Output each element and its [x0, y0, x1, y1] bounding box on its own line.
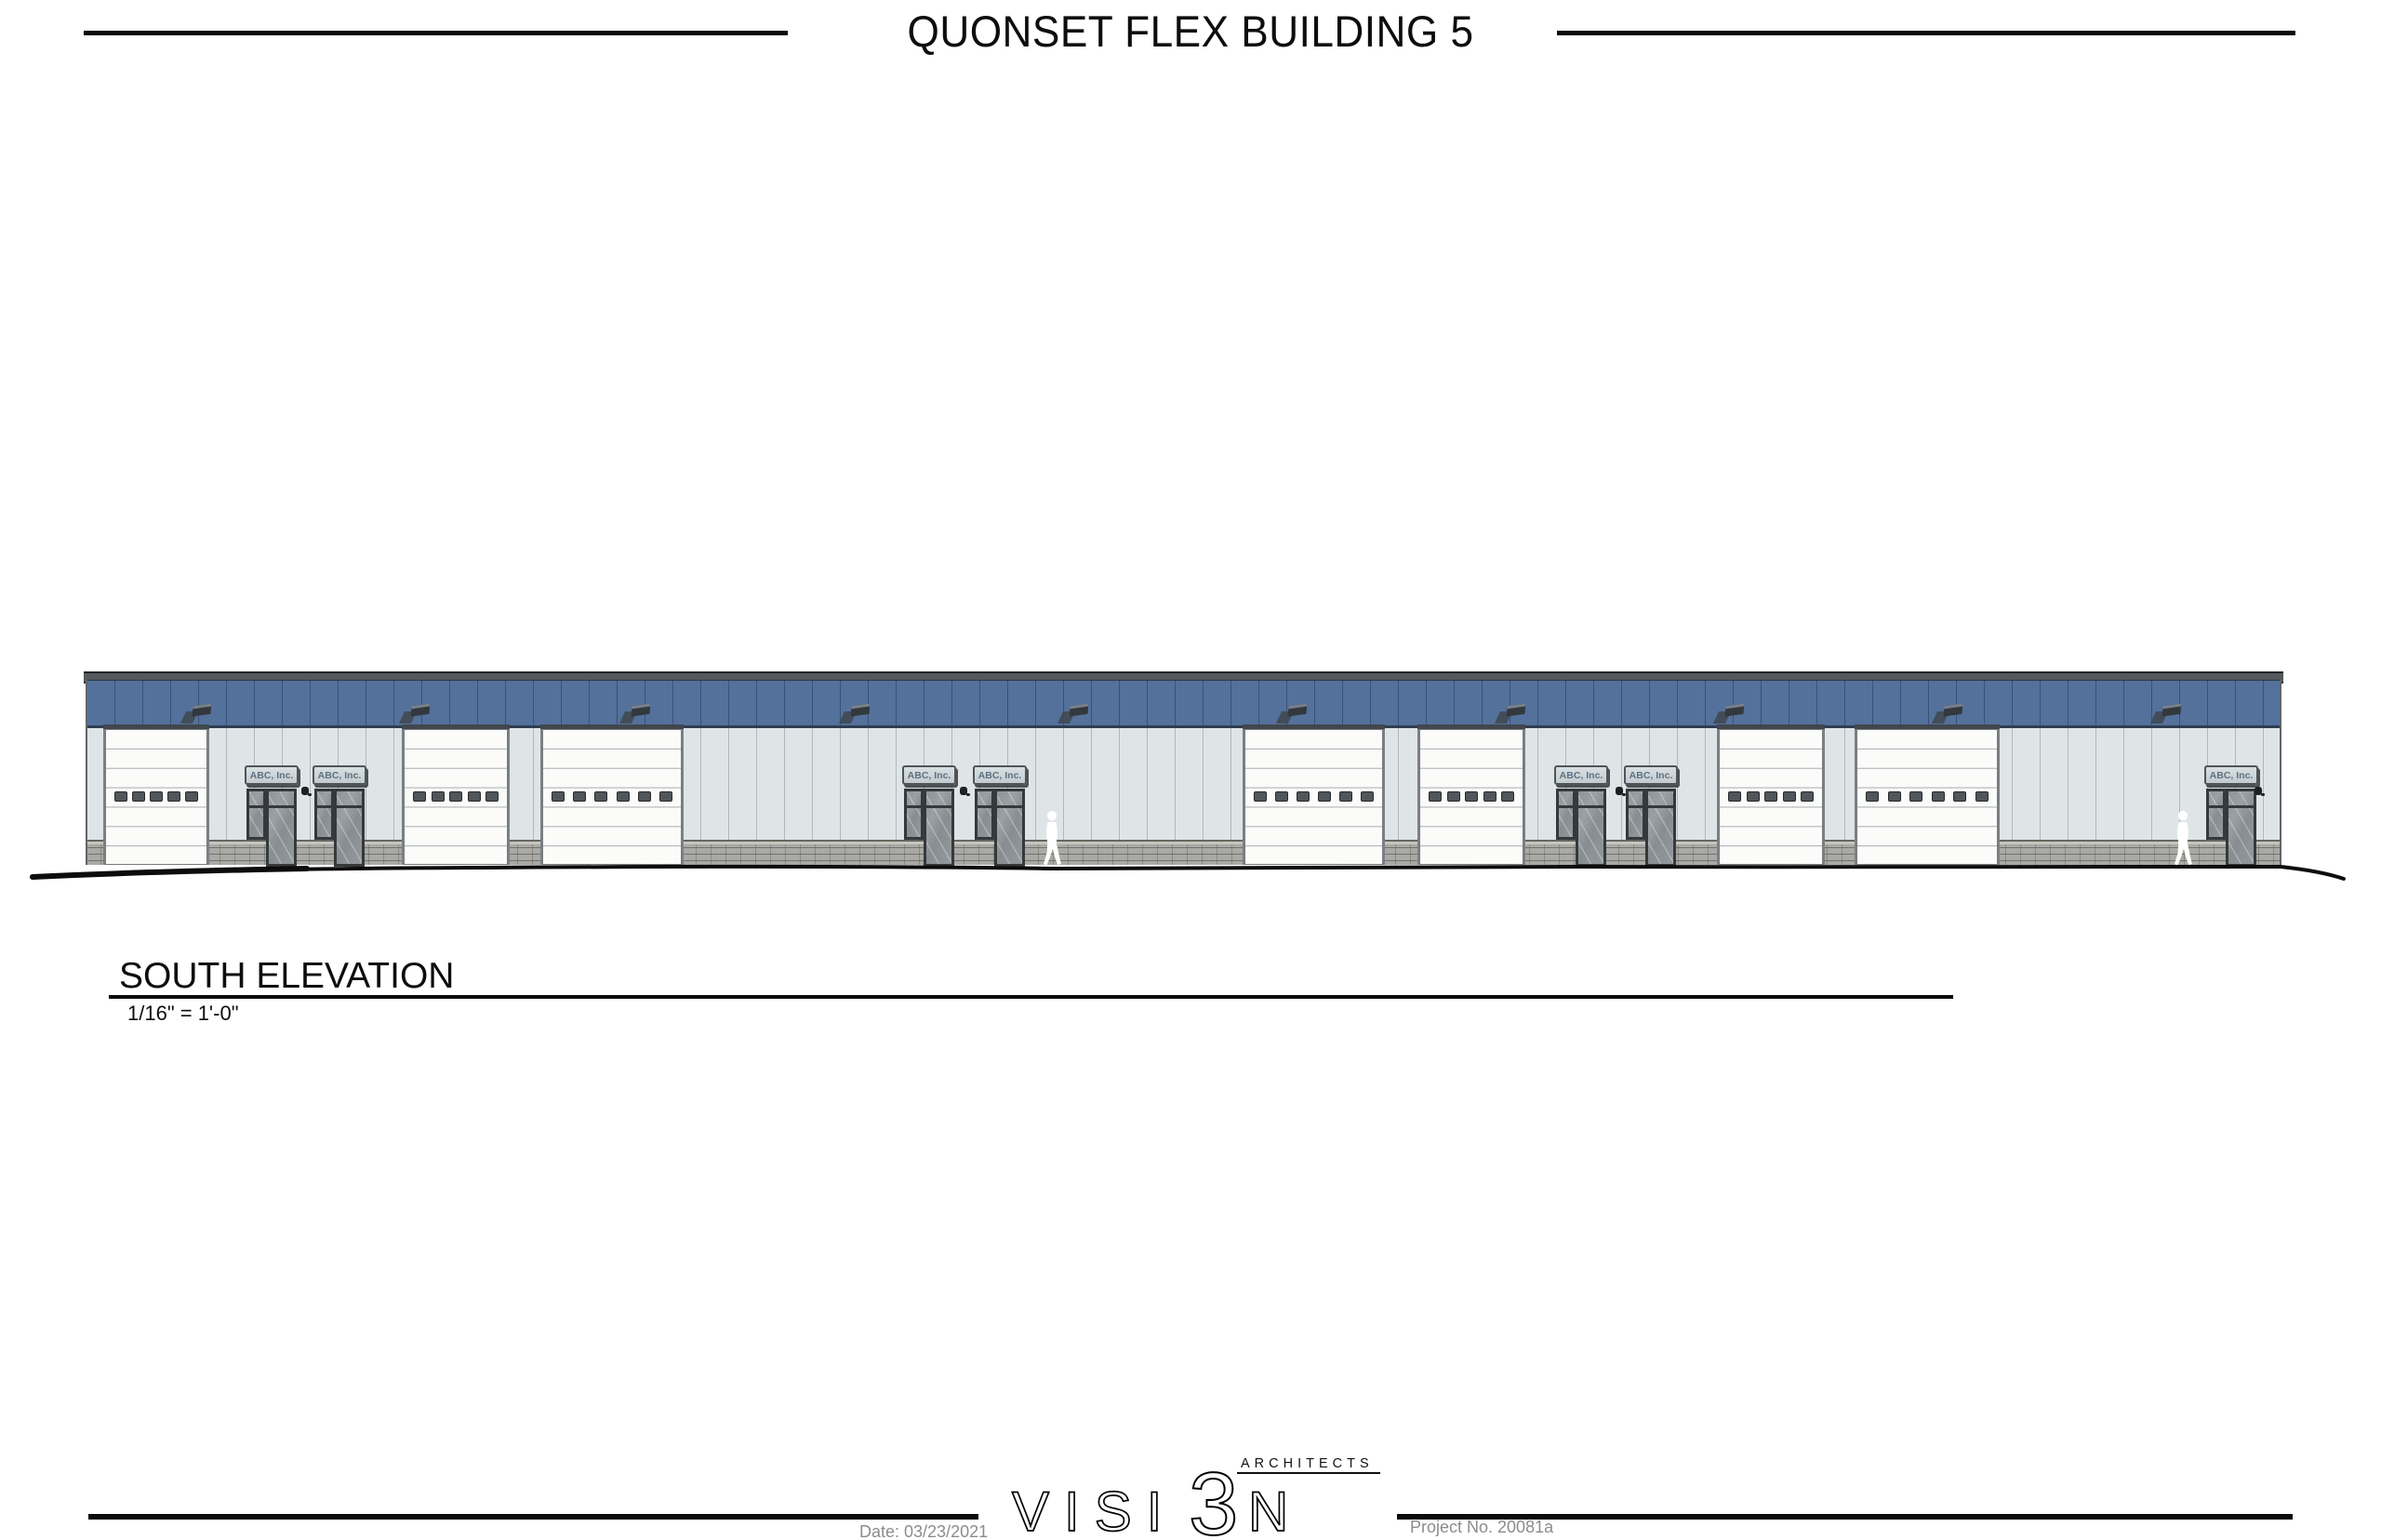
metal-band-seam	[1454, 681, 1455, 725]
garage-door-jamb	[1523, 729, 1525, 865]
metal-band-seam	[1258, 681, 1259, 725]
wall-panel-seam	[1230, 728, 1231, 840]
metal-band-seam	[282, 681, 283, 725]
elevation-drawing: ABC, Inc.ABC, Inc.ABC, Inc.ABC, Inc.ABC,…	[0, 0, 2381, 1540]
wall-panel-seam	[2123, 728, 2124, 840]
metal-band-seam	[1789, 681, 1789, 725]
metal-band-seam	[254, 681, 255, 725]
tenant-sign: ABC, Inc.	[245, 765, 299, 785]
metal-band-seam	[449, 681, 450, 725]
garage-door-window	[1909, 791, 1922, 802]
garage-door-window	[432, 791, 445, 802]
garage-door-jamb	[682, 729, 684, 865]
metal-band-seam	[1844, 681, 1845, 725]
garage-door-jamb	[1823, 729, 1825, 865]
wall-panel-seam	[700, 728, 701, 840]
garage-door-window	[1339, 791, 1352, 802]
garage-door-window-row	[1429, 791, 1514, 802]
wall-light	[1499, 705, 1525, 725]
garage-door-window	[1866, 791, 1879, 802]
garage-door	[1244, 729, 1383, 865]
metal-band-seam	[1621, 681, 1622, 725]
door-transom-mullion	[926, 805, 951, 808]
wall-panel-seam	[868, 728, 869, 840]
garage-door-window	[1888, 791, 1901, 802]
sidelight-mullion	[978, 805, 991, 808]
wall-light	[844, 705, 870, 725]
metal-band-seam	[2235, 681, 2236, 725]
door-transom-mullion	[269, 805, 294, 808]
logo-architects-text: ARCHITECTS	[1241, 1456, 1374, 1471]
wall-panel-seam	[1203, 728, 1204, 840]
metal-band-seam	[477, 681, 478, 725]
building-edge-right	[2280, 680, 2281, 865]
entry-sidelight	[2206, 789, 2226, 840]
wall-panel-seam	[1844, 728, 1845, 840]
wall-panel-seam	[756, 728, 757, 840]
garage-door-window	[413, 791, 426, 802]
garage-door-window	[638, 791, 651, 802]
garage-door-window	[594, 791, 607, 802]
garage-door-window	[150, 791, 163, 802]
wall-light-icon	[411, 703, 431, 716]
metal-band-seam	[338, 681, 339, 725]
wall-panel-seam	[1035, 728, 1036, 840]
logo-numeral-3: 3	[1189, 1454, 1238, 1540]
garage-door-window-row	[1254, 791, 1374, 802]
elevation-label-underline	[109, 995, 1953, 999]
building-edge-left	[86, 680, 87, 865]
garage-door	[542, 729, 682, 865]
door-transom-mullion	[337, 805, 362, 808]
garage-door	[105, 729, 207, 865]
door-transom-mullion	[2228, 805, 2254, 808]
metal-band-seam	[924, 681, 924, 725]
garage-door-window	[1429, 791, 1442, 802]
garage-door-window	[1932, 791, 1945, 802]
wall-light	[624, 705, 650, 725]
drawing-sheet: QUONSET FLEX BUILDING 5 ABC, Inc.ABC, In…	[0, 0, 2381, 1540]
metal-band-seam	[589, 681, 590, 725]
wall-light-icon	[1070, 703, 1089, 716]
metal-band-seam	[812, 681, 813, 725]
wall-light	[1281, 705, 1307, 725]
wall-panel-seam	[784, 728, 785, 840]
metal-band-seam	[1705, 681, 1706, 725]
garage-door-jamb	[1383, 729, 1385, 865]
garage-door-window	[1728, 791, 1741, 802]
entry-sconce-spark	[2261, 793, 2265, 796]
wall-panel-seam	[1398, 728, 1399, 840]
garage-door-window-row	[552, 791, 672, 802]
garage-door	[1856, 729, 1998, 865]
wall-light-icon	[1507, 703, 1526, 716]
garage-door-window	[1783, 791, 1796, 802]
wall-light-icon	[2162, 703, 2182, 716]
garage-door-window	[573, 791, 586, 802]
metal-band-seam	[1537, 681, 1538, 725]
wall-panel-seam	[2263, 728, 2264, 840]
wall-panel-seam	[1537, 728, 1538, 840]
garage-door-window	[1465, 791, 1478, 802]
metal-band-seam	[672, 681, 673, 725]
wall-panel-seam	[2012, 728, 2013, 840]
wall-light	[404, 705, 430, 725]
garage-door-window	[1275, 791, 1288, 802]
entry-sidelight	[1626, 789, 1645, 840]
garage-door-window	[1747, 791, 1760, 802]
metal-band-seam	[1091, 681, 1092, 725]
wall-light-icon	[632, 703, 651, 716]
garage-door-window	[1361, 791, 1374, 802]
metal-band-seam	[1203, 681, 1204, 725]
wall-panel-seam	[812, 728, 813, 840]
wall-light	[185, 705, 211, 725]
wall-panel-seam	[2151, 728, 2152, 840]
metal-band-seam	[1314, 681, 1315, 725]
metal-band-seam	[310, 681, 311, 725]
wall-light	[2155, 705, 2181, 725]
elevation-label: SOUTH ELEVATION	[119, 956, 454, 997]
metal-band-seam	[1482, 681, 1483, 725]
tenant-sign: ABC, Inc.	[902, 765, 956, 785]
wall-light-icon	[1288, 703, 1308, 716]
wall-light	[1718, 705, 1744, 725]
glass-reflection	[1559, 791, 1573, 837]
metal-band-seam	[1398, 681, 1399, 725]
garage-door-window	[1975, 791, 1989, 802]
garage-door-jamb	[1998, 729, 2000, 865]
wall-light-icon	[193, 703, 212, 716]
entry-sidelight	[975, 789, 994, 840]
entry-sidelight	[1556, 789, 1576, 840]
garage-door-jamb	[207, 729, 209, 865]
wall-light	[1936, 705, 1962, 725]
logo-text-n: N	[1248, 1480, 1288, 1540]
wall-panel-seam	[393, 728, 394, 840]
garage-door-window-row	[413, 791, 499, 802]
garage-door-window-row	[1728, 791, 1814, 802]
garage-door-window	[1953, 791, 1966, 802]
wall-panel-seam	[2095, 728, 2096, 840]
metal-band-seam	[561, 681, 562, 725]
garage-door-window	[1254, 791, 1267, 802]
garage-door-window	[1447, 791, 1460, 802]
metal-band-seam	[1342, 681, 1343, 725]
metal-band-seam	[728, 681, 729, 725]
garage-door	[404, 729, 508, 865]
project-number-label: Project No. 20081a	[1410, 1518, 1553, 1537]
wall-panel-seam	[1091, 728, 1092, 840]
wall-panel-seam	[533, 728, 534, 840]
garage-door-jamb	[508, 729, 510, 865]
metal-band-seam	[1872, 681, 1873, 725]
metal-band-seam	[1677, 681, 1678, 725]
architect-logo: VISI 3 N ARCHITECTS	[1006, 1451, 1406, 1540]
garage-door-window	[486, 791, 499, 802]
metal-band-seam	[1984, 681, 1985, 725]
metal-band-seam	[700, 681, 701, 725]
garage-door-window	[1483, 791, 1496, 802]
metal-band-seam	[2068, 681, 2068, 725]
footer-rule-left	[88, 1514, 978, 1520]
ground-line-svg	[0, 849, 2381, 896]
wall-panel-seam	[728, 728, 729, 840]
sidelight-mullion	[317, 805, 331, 808]
metal-band-seam	[1230, 681, 1231, 725]
glass-reflection	[978, 791, 991, 837]
wall-panel-seam	[310, 728, 311, 840]
garage-door-window	[552, 791, 565, 802]
garage-door-window	[114, 791, 127, 802]
garage-door-window	[1801, 791, 1814, 802]
metal-band-seam	[1928, 681, 1929, 725]
metal-band-seam	[1119, 681, 1120, 725]
metal-band-seam	[393, 681, 394, 725]
wall-panel-seam	[2040, 728, 2041, 840]
metal-band-seam	[170, 681, 171, 725]
metal-band-seam	[951, 681, 952, 725]
garage-door-window	[468, 791, 481, 802]
entry-sconce-spark	[308, 793, 312, 796]
metal-band-seam	[2123, 681, 2124, 725]
wall-panel-seam	[1621, 728, 1622, 840]
metal-band-seam	[1565, 681, 1566, 725]
wall-light-icon	[1944, 703, 1963, 716]
glass-reflection	[2209, 791, 2223, 837]
metal-band-seam	[756, 681, 757, 725]
door-transom-mullion	[1648, 805, 1673, 808]
garage-door-window	[449, 791, 462, 802]
wall-light-icon	[1725, 703, 1745, 716]
sidelight-mullion	[249, 805, 263, 808]
elevation-scale: 1/16" = 1'-0"	[127, 1002, 239, 1026]
metal-band-seam	[2263, 681, 2264, 725]
garage-door-window	[617, 791, 630, 802]
sidelight-mullion	[2209, 805, 2223, 808]
entry-sidelight	[904, 789, 924, 840]
metal-band-seam	[505, 681, 506, 725]
metal-band-seam	[2040, 681, 2041, 725]
metal-band-seam	[617, 681, 618, 725]
garage-door-window	[1297, 791, 1310, 802]
tenant-sign: ABC, Inc.	[1554, 765, 1608, 785]
wall-panel-seam	[1119, 728, 1120, 840]
wall-panel-seam	[896, 728, 897, 840]
garage-door	[1419, 729, 1523, 865]
tenant-sign: ABC, Inc.	[1624, 765, 1678, 785]
wall-panel-seam	[840, 728, 841, 840]
garage-door	[1719, 729, 1823, 865]
tenant-sign: ABC, Inc.	[313, 765, 366, 785]
metal-band-seam	[226, 681, 227, 725]
garage-door-window	[185, 791, 198, 802]
metal-band-seam	[979, 681, 980, 725]
metal-band-seam	[533, 681, 534, 725]
metal-band-seam	[784, 681, 785, 725]
metal-band-seam	[1761, 681, 1762, 725]
metal-band-seam	[1035, 681, 1036, 725]
garage-door-window	[659, 791, 672, 802]
glass-reflection	[317, 791, 331, 837]
ground-line	[0, 849, 2381, 896]
sidelight-mullion	[907, 805, 921, 808]
entry-sidelight	[314, 789, 334, 840]
metal-band-seam	[114, 681, 115, 725]
garage-door-window	[167, 791, 180, 802]
entry-sconce-spark	[1622, 793, 1626, 796]
metal-band-seam	[1816, 681, 1817, 725]
metal-band-seam	[1007, 681, 1008, 725]
wall-panel-seam	[226, 728, 227, 840]
entry-sconce-spark	[966, 793, 970, 796]
wall-light-icon	[851, 703, 871, 716]
metal-band-seam	[142, 681, 143, 725]
metal-band-seam	[896, 681, 897, 725]
wall-panel-seam	[1705, 728, 1706, 840]
metal-band-seam	[1370, 681, 1371, 725]
metal-band-seam	[2207, 681, 2208, 725]
tenant-sign: ABC, Inc.	[2204, 765, 2258, 785]
logo-text-visi: VISI	[1012, 1480, 1177, 1540]
door-transom-mullion	[997, 805, 1022, 808]
metal-band-seam	[1649, 681, 1650, 725]
wall-panel-seam	[2068, 728, 2068, 840]
garage-door-window	[1764, 791, 1777, 802]
glass-reflection	[907, 791, 921, 837]
door-transom-mullion	[1578, 805, 1603, 808]
garage-door-window	[132, 791, 145, 802]
tenant-sign: ABC, Inc.	[973, 765, 1027, 785]
wall-panel-seam	[1147, 728, 1148, 840]
sidelight-mullion	[1629, 805, 1643, 808]
garage-door-window	[1501, 791, 1514, 802]
glass-reflection	[1629, 791, 1643, 837]
metal-band-seam	[2012, 681, 2013, 725]
entry-sidelight	[246, 789, 266, 840]
metal-band-seam	[1900, 681, 1901, 725]
garage-door-window-row	[1866, 791, 1989, 802]
metal-band-seam	[1593, 681, 1594, 725]
wall-panel-seam	[1175, 728, 1176, 840]
wall-light	[1062, 705, 1088, 725]
glass-reflection	[249, 791, 263, 837]
metal-band-seam	[366, 681, 366, 725]
metal-band-seam	[2095, 681, 2096, 725]
garage-door-window	[1318, 791, 1331, 802]
metal-band-seam	[1426, 681, 1427, 725]
metal-band-seam	[1147, 681, 1148, 725]
sidelight-mullion	[1559, 805, 1573, 808]
date-label: Date: 03/23/2021	[859, 1522, 988, 1540]
metal-band-seam	[1175, 681, 1176, 725]
garage-door-window-row	[114, 791, 198, 802]
